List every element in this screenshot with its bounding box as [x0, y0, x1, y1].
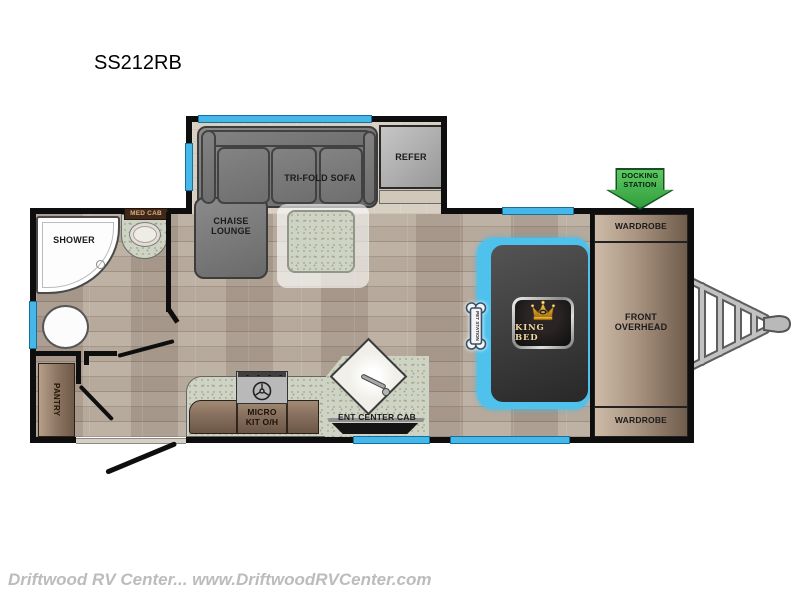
hall-wall-vertical — [76, 351, 81, 384]
bath-wall-bottom — [36, 351, 80, 356]
shower-label: SHOWER — [44, 235, 104, 245]
pantry-label: PANTRY — [38, 368, 75, 432]
hitch-icon — [686, 268, 792, 380]
watermark: Driftwood RV Center... www.DriftwoodRVCe… — [8, 570, 431, 590]
king-bed-badge: KING BED — [512, 297, 574, 349]
sofa-right-arm — [363, 131, 376, 205]
trailer-hitch — [686, 268, 792, 380]
chaise-lounge — [194, 197, 268, 279]
bone-icon: PET STATION — [463, 301, 489, 351]
king-bed-label: KING BED — [515, 323, 571, 343]
window-bath-left — [29, 301, 37, 349]
wall-right — [688, 208, 694, 443]
docking-station-arrow: DOCKING STATION — [606, 168, 674, 210]
toilet — [42, 305, 89, 349]
burner-icon — [251, 380, 273, 402]
bath-sink — [129, 222, 161, 247]
micro-label: MICRO KIT O/H — [224, 408, 300, 428]
front-overhead-label: FRONT OVERHEAD — [594, 312, 688, 333]
ottoman-table — [287, 210, 355, 273]
bath-wall-right — [166, 212, 171, 312]
wall-bottom-left — [30, 437, 76, 443]
window-bed-top — [502, 207, 574, 215]
chaise-label: CHAISE LOUNGE — [194, 216, 268, 237]
sofa-label: TRI-FOLD SOFA — [255, 173, 385, 183]
wardrobe-bottom-label: WARDROBE — [594, 416, 688, 426]
window-slideout-left — [185, 143, 193, 191]
wardrobe-top-label: WARDROBE — [594, 222, 688, 232]
refer-shelf — [379, 190, 443, 204]
page-title: SS212RB — [94, 52, 182, 75]
docking-station-label: DOCKING STATION — [606, 172, 674, 189]
window-bottom-bed — [450, 436, 570, 444]
med-cab-label: MED CAB — [124, 210, 168, 217]
ent-center-label: ENT CENTER CAB — [325, 413, 429, 423]
sofa-left-arm — [201, 130, 216, 204]
wall-slideout-right — [441, 116, 447, 214]
entry-door-swing — [105, 441, 177, 474]
hall-wall-jamb — [84, 356, 89, 365]
pet-station-label: PET STATION — [475, 311, 480, 341]
window-bottom-ent — [353, 436, 430, 444]
stove-控-strip — [238, 372, 286, 377]
window-slideout-top — [198, 115, 372, 123]
tv-mount-knob — [382, 388, 390, 396]
floorplan-canvas: SS212RB SHOWER MED CAB PANTRY CHAI — [0, 0, 800, 600]
shower-drain-icon — [96, 260, 105, 269]
pet-station-badge: PET STATION — [463, 301, 489, 351]
refer-label: REFER — [379, 152, 443, 162]
crown-icon — [521, 300, 565, 322]
sofa-back-cushion — [201, 130, 373, 147]
media-shelf — [329, 423, 421, 434]
wall-bottom-main — [186, 437, 694, 443]
